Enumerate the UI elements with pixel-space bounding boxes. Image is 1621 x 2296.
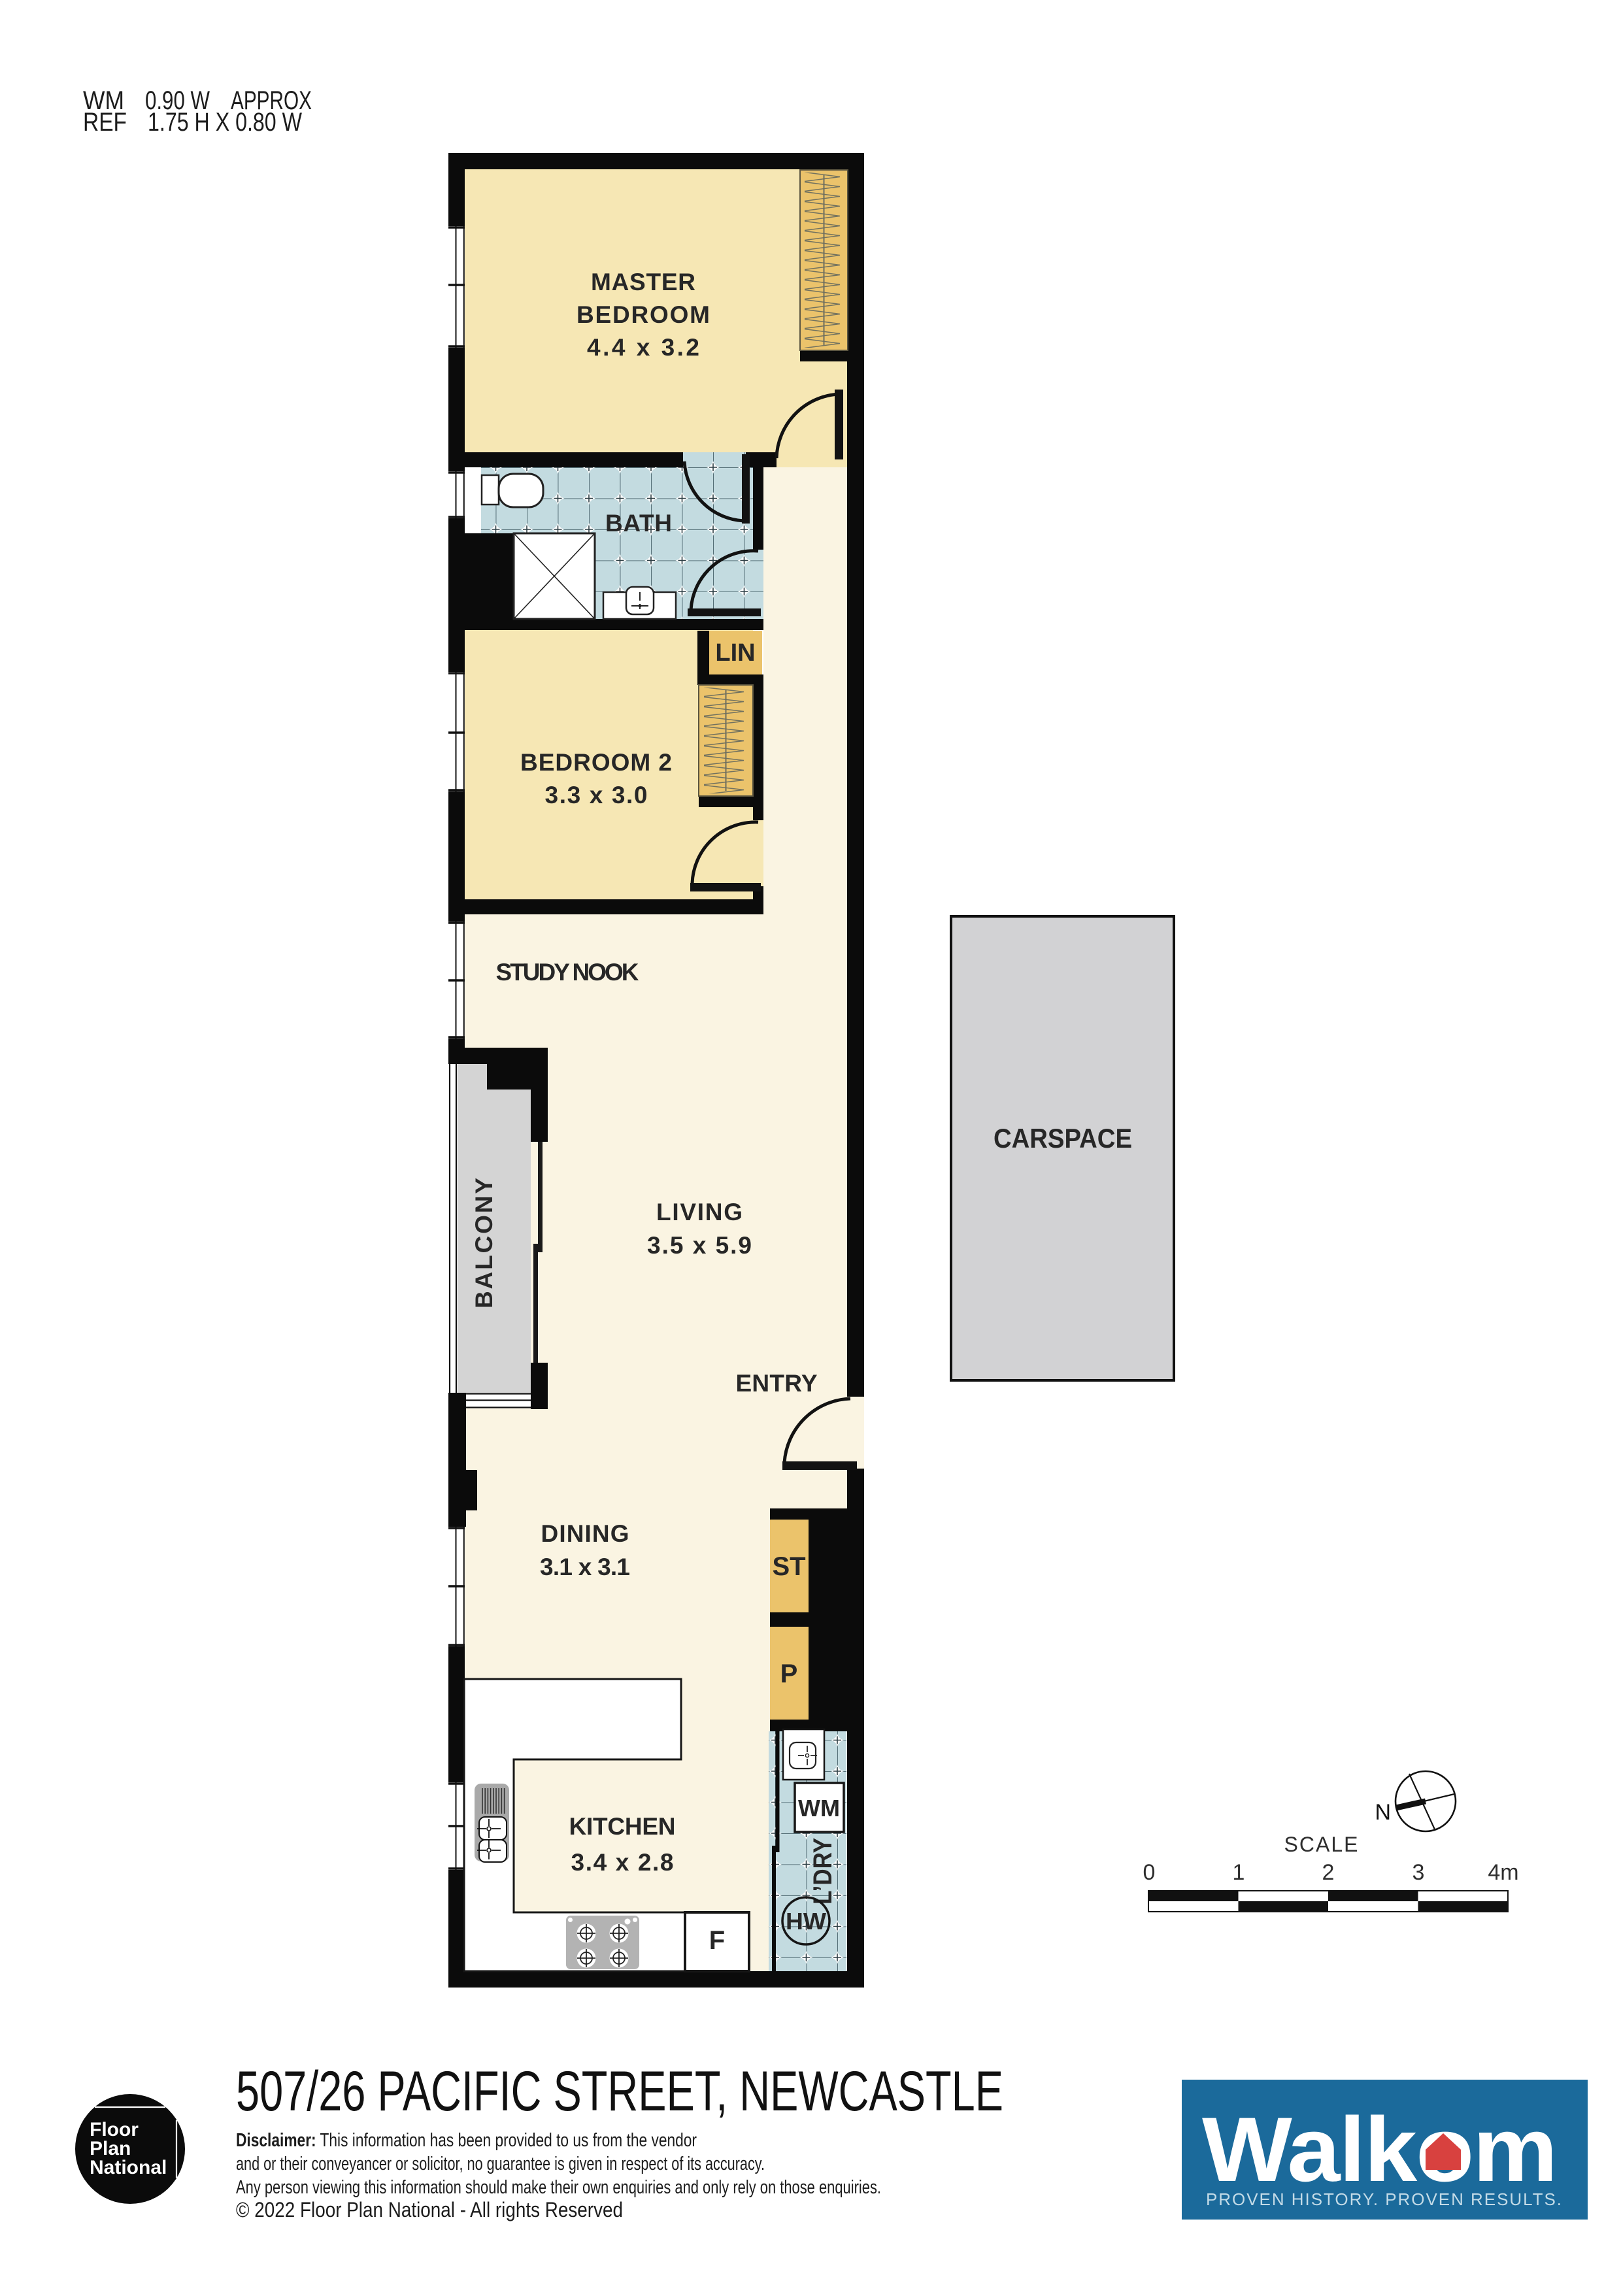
svg-text:3.5 x 5.9: 3.5 x 5.9: [647, 1232, 752, 1259]
svg-text:3: 3: [1412, 1860, 1425, 1885]
svg-text:ENTRY: ENTRY: [736, 1370, 818, 1397]
svg-text:F: F: [709, 1926, 725, 1955]
svg-text:and or their conveyancer or so: and or their conveyancer or solicitor, n…: [236, 2154, 765, 2174]
svg-text:P: P: [780, 1659, 798, 1688]
svg-text:DINING: DINING: [541, 1520, 629, 1547]
svg-text:BATH: BATH: [605, 510, 672, 537]
svg-text:BEDROOM: BEDROOM: [577, 301, 710, 328]
svg-text:SCALE: SCALE: [1284, 1833, 1360, 1856]
svg-text:PROVEN HISTORY. PROVEN RESULTS: PROVEN HISTORY. PROVEN RESULTS.: [1206, 2189, 1562, 2209]
svg-text:KITCHEN: KITCHEN: [569, 1813, 676, 1840]
svg-text:1.75 H X 0.80 W: 1.75 H X 0.80 W: [148, 108, 302, 137]
svg-text:CARSPACE: CARSPACE: [994, 1123, 1132, 1154]
svg-text:STUDY NOOK: STUDY NOOK: [496, 959, 639, 986]
svg-text:WM: WM: [798, 1795, 840, 1822]
svg-text:BEDROOM 2: BEDROOM 2: [520, 749, 672, 776]
svg-text:3.3 x 3.0: 3.3 x 3.0: [545, 782, 648, 808]
svg-text:LIVING: LIVING: [656, 1199, 743, 1225]
svg-text:507/26 PACIFIC STREET, NEWCAST: 507/26 PACIFIC STREET, NEWCASTLE: [236, 2060, 1003, 2123]
svg-text:Disclaimer: This information h: Disclaimer: This information has been pr…: [236, 2130, 697, 2151]
svg-text:N: N: [1375, 1800, 1391, 1825]
svg-text:3.4 x 2.8: 3.4 x 2.8: [571, 1849, 674, 1876]
svg-text:REF: REF: [83, 108, 127, 137]
svg-text:1: 1: [1233, 1860, 1245, 1885]
svg-text:MASTER: MASTER: [591, 269, 695, 295]
svg-text:4m: 4m: [1488, 1860, 1518, 1885]
svg-text:BALCONY: BALCONY: [471, 1178, 497, 1308]
svg-text:ST: ST: [772, 1552, 805, 1581]
svg-text:Any person viewing this inform: Any person viewing this information shou…: [236, 2177, 881, 2198]
svg-text:0: 0: [1143, 1860, 1156, 1885]
svg-text:Walkom: Walkom: [1202, 2098, 1556, 2201]
svg-text:3.1 x 3.1: 3.1 x 3.1: [540, 1554, 630, 1580]
svg-text:4.4 x 3.2: 4.4 x 3.2: [587, 334, 699, 361]
svg-text:HW: HW: [786, 1908, 826, 1935]
svg-text:2: 2: [1322, 1860, 1335, 1885]
svg-text:National: National: [90, 2157, 167, 2178]
svg-text:© 2022 Floor Plan National - A: © 2022 Floor Plan National - All rights …: [236, 2198, 623, 2221]
svg-text:LIN: LIN: [715, 639, 755, 667]
svg-text:L’DRY: L’DRY: [809, 1838, 837, 1905]
